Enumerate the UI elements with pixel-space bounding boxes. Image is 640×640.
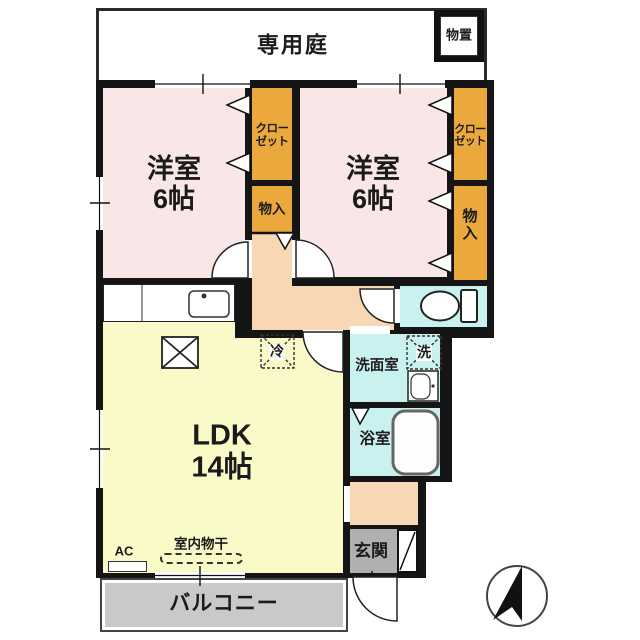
bathroom-label: 浴室 bbox=[359, 430, 390, 447]
shed-label: 物置 bbox=[446, 29, 472, 44]
garden-label: 専用庭 bbox=[257, 34, 329, 59]
bedroom-1-label: 洋室6帖 bbox=[147, 154, 201, 214]
window-ticks bbox=[90, 74, 400, 586]
bedroom-2-label: 洋室6帖 bbox=[346, 154, 400, 214]
shoe-cabinet-diagonal bbox=[400, 532, 415, 570]
bathtub bbox=[393, 411, 438, 474]
drying-label: 室内物干 bbox=[174, 536, 228, 551]
door-arc bbox=[360, 289, 394, 323]
ldk-label: LDK14帖 bbox=[191, 420, 252, 485]
compass-icon bbox=[487, 566, 547, 626]
faucet bbox=[202, 294, 207, 299]
door-arc bbox=[296, 240, 334, 278]
closet-1-label: クローゼット bbox=[256, 123, 289, 149]
floor-plan: 専用庭 物置 洋室6帖 洋室6帖 クローゼット クローゼット 物入 物入 LDK… bbox=[0, 0, 640, 640]
ac-outlet-box bbox=[108, 561, 147, 572]
balcony-label: バルコニー bbox=[169, 592, 279, 616]
washer-label: 洗 bbox=[416, 345, 432, 361]
door-arc bbox=[303, 332, 343, 372]
front-door-arc bbox=[353, 577, 397, 621]
washbasin bbox=[408, 371, 438, 401]
closet-2-label: クローゼット bbox=[454, 124, 486, 149]
washroom-label: 洗面室 bbox=[355, 358, 399, 374]
toilet-fixture bbox=[421, 290, 477, 322]
fridge-label: 冷 bbox=[269, 344, 285, 360]
door-arc bbox=[212, 242, 248, 278]
indoor-drying-rail bbox=[160, 553, 243, 564]
ac-label: AC bbox=[115, 545, 134, 560]
entrance-label: 玄関 bbox=[354, 541, 388, 560]
kitchen-sink bbox=[189, 291, 229, 317]
stove-box bbox=[162, 337, 198, 368]
storage-1-label: 物入 bbox=[259, 201, 286, 216]
storage-2-label: 物入 bbox=[462, 209, 477, 243]
plan-details bbox=[0, 0, 640, 640]
